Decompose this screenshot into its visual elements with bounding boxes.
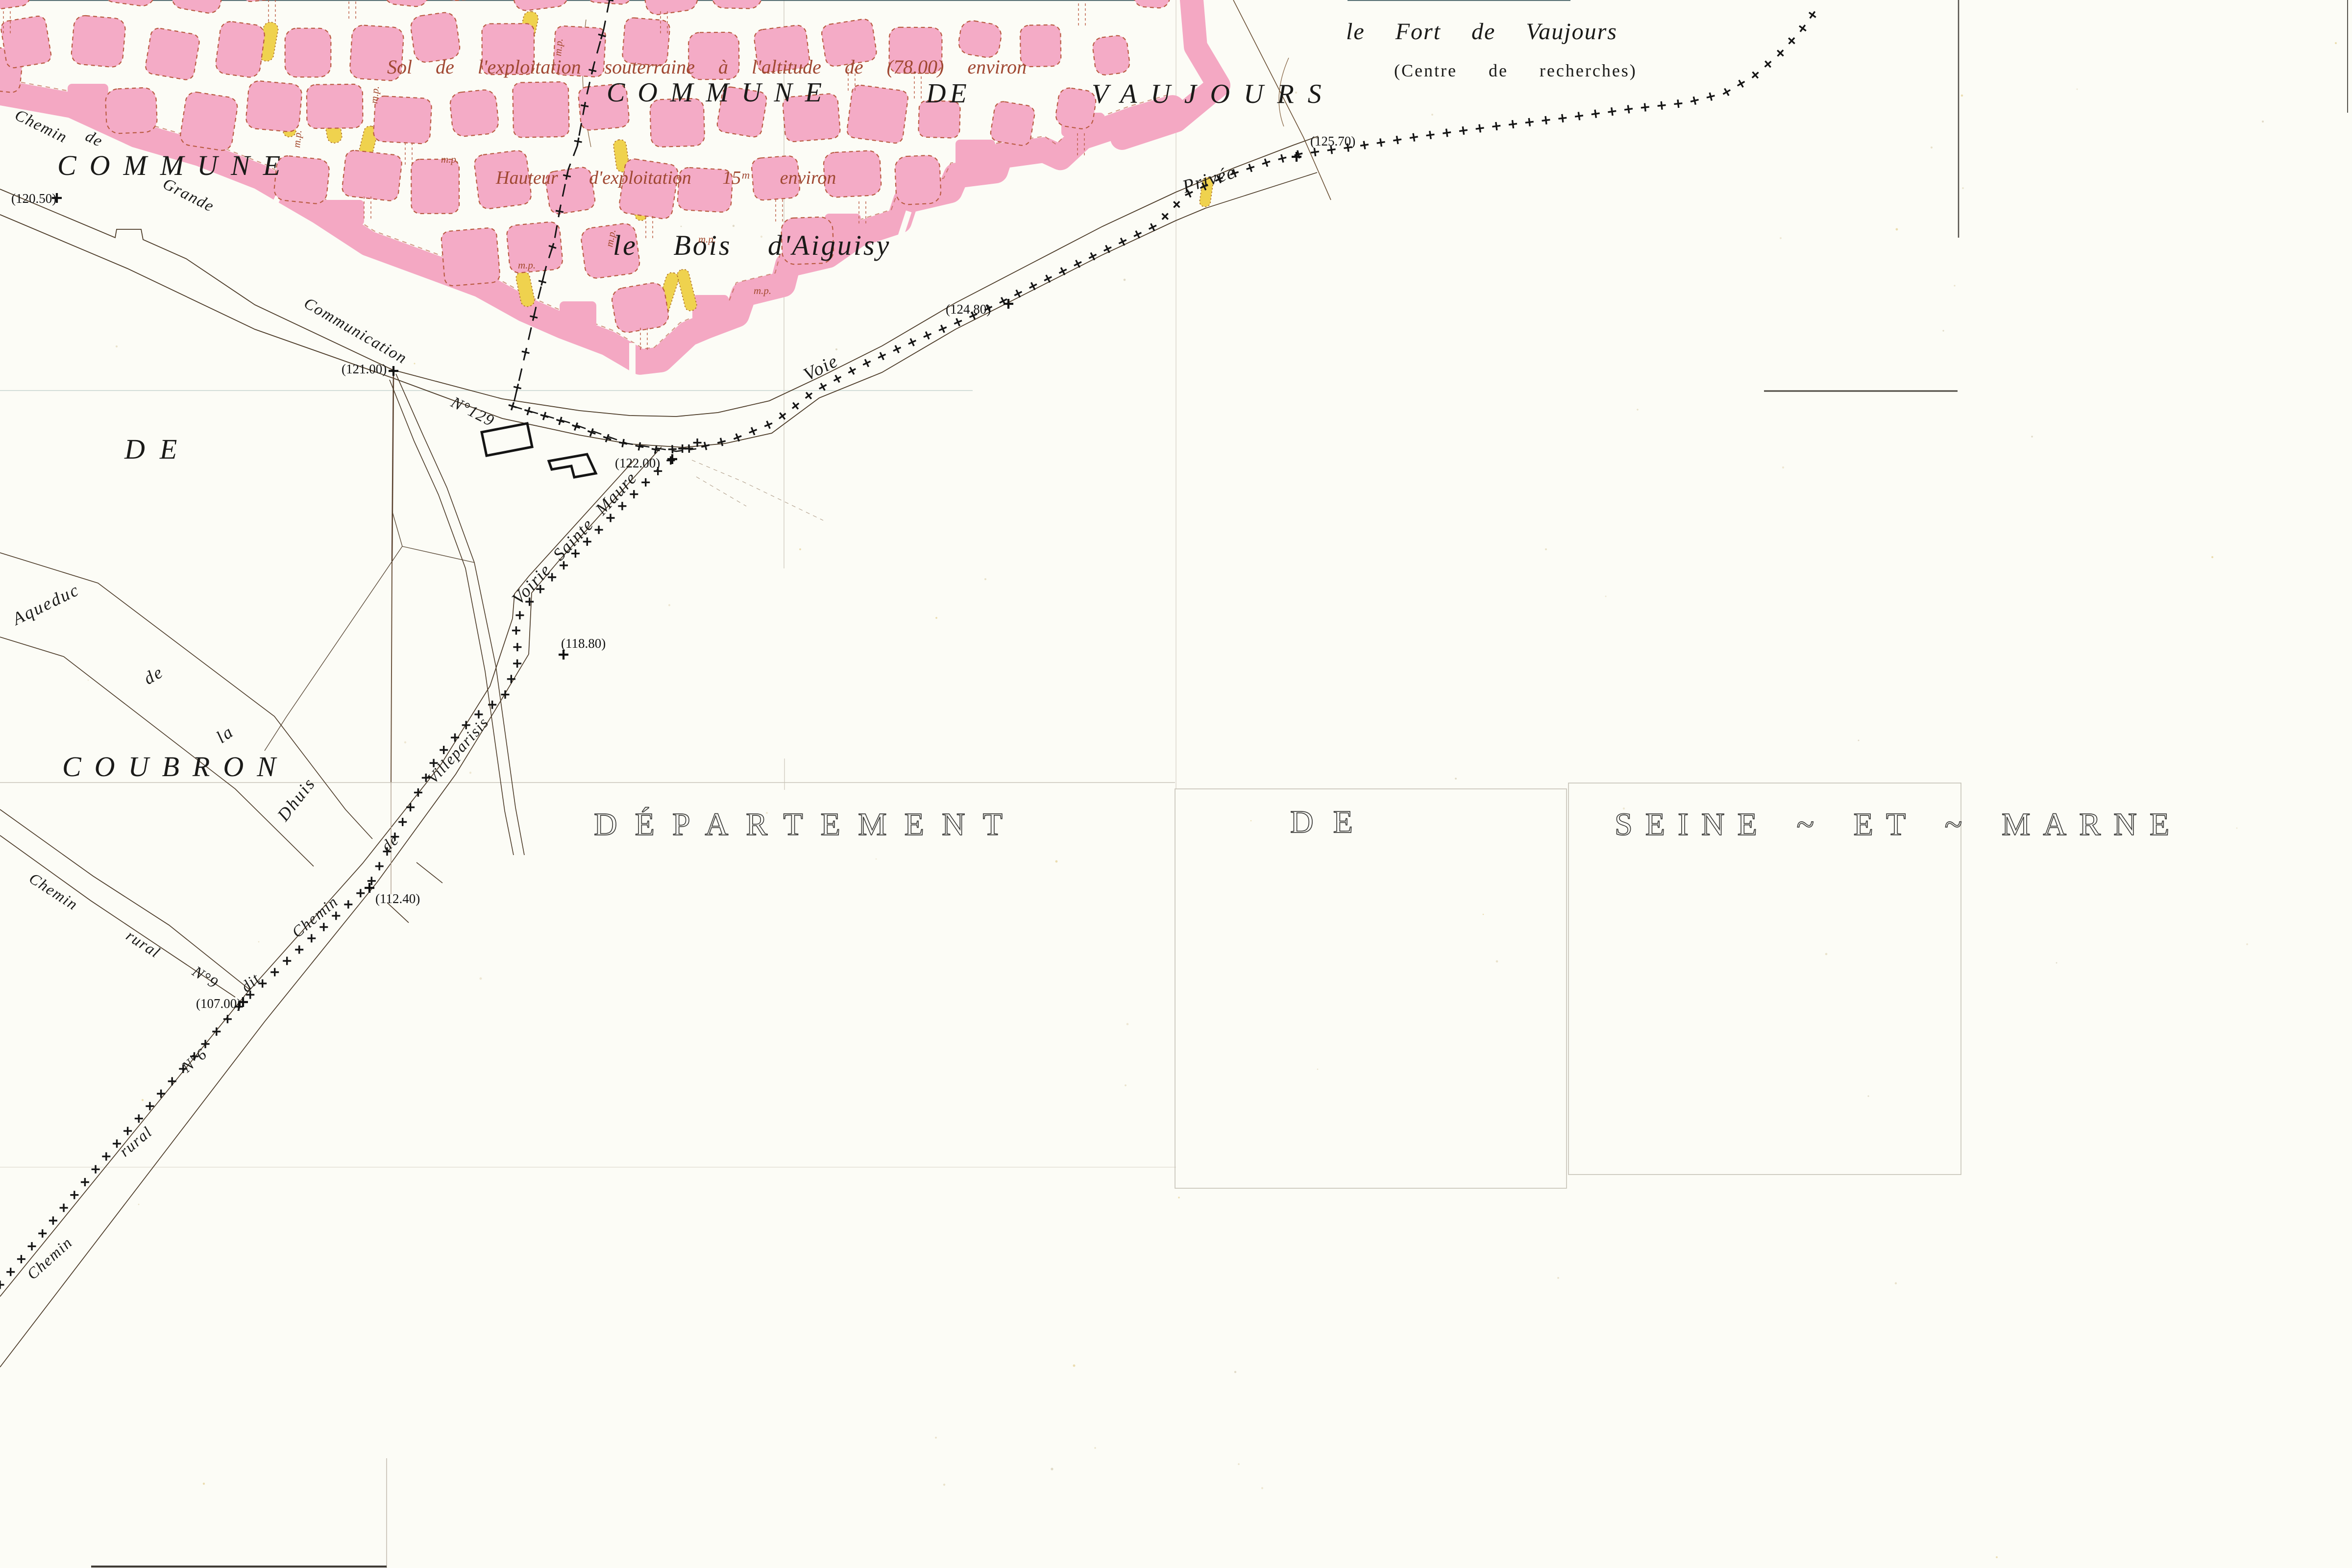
- svg-text:COUBRON: COUBRON: [62, 751, 289, 783]
- svg-text:(118.80): (118.80): [561, 636, 606, 651]
- svg-text:m.p.: m.p.: [441, 153, 459, 165]
- svg-text:le Bois d'Aiguisy: le Bois d'Aiguisy: [613, 229, 891, 261]
- svg-text:SEINE ~ ET ~ MARNE: SEINE ~ ET ~ MARNE: [1615, 807, 2182, 842]
- svg-text:m.p.: m.p.: [552, 38, 565, 56]
- svg-text:DE: DE: [1290, 804, 1372, 840]
- svg-text:COMMUNE: COMMUNE: [607, 77, 834, 108]
- svg-text:m.p.: m.p.: [368, 85, 381, 104]
- svg-text:m.p.: m.p.: [698, 233, 716, 245]
- svg-text:DÉPARTEMENT: DÉPARTEMENT: [594, 807, 1020, 842]
- svg-text:DE: DE: [124, 433, 192, 465]
- svg-text:VAUJOURS: VAUJOURS: [1092, 79, 1335, 109]
- svg-text:m.p.: m.p.: [754, 285, 771, 296]
- svg-text:COMMUNE: COMMUNE: [57, 149, 294, 181]
- svg-text:m.p.: m.p.: [291, 129, 304, 148]
- svg-text:Hauteur d'exploitation 15ᵐ env: Hauteur d'exploitation 15ᵐ environ: [495, 168, 836, 188]
- svg-text:le Fort de Vaujours: le Fort de Vaujours: [1346, 19, 1617, 45]
- svg-text:Sol de l'exploitation souterra: Sol de l'exploitation souterraine à l'al…: [387, 56, 1027, 78]
- svg-text:(112.40): (112.40): [375, 891, 420, 906]
- svg-text:(122.00): (122.00): [615, 456, 660, 470]
- svg-text:DE: DE: [926, 78, 971, 109]
- svg-text:(124.80): (124.80): [946, 302, 991, 317]
- svg-text:(121.00): (121.00): [342, 362, 387, 376]
- svg-text:m.p.: m.p.: [518, 259, 536, 271]
- svg-text:(125.70): (125.70): [1310, 134, 1355, 148]
- svg-text:(120.50): (120.50): [11, 191, 56, 206]
- svg-text:(107.00): (107.00): [196, 996, 241, 1011]
- svg-text:(Centre de recherches): (Centre de recherches): [1394, 61, 1637, 80]
